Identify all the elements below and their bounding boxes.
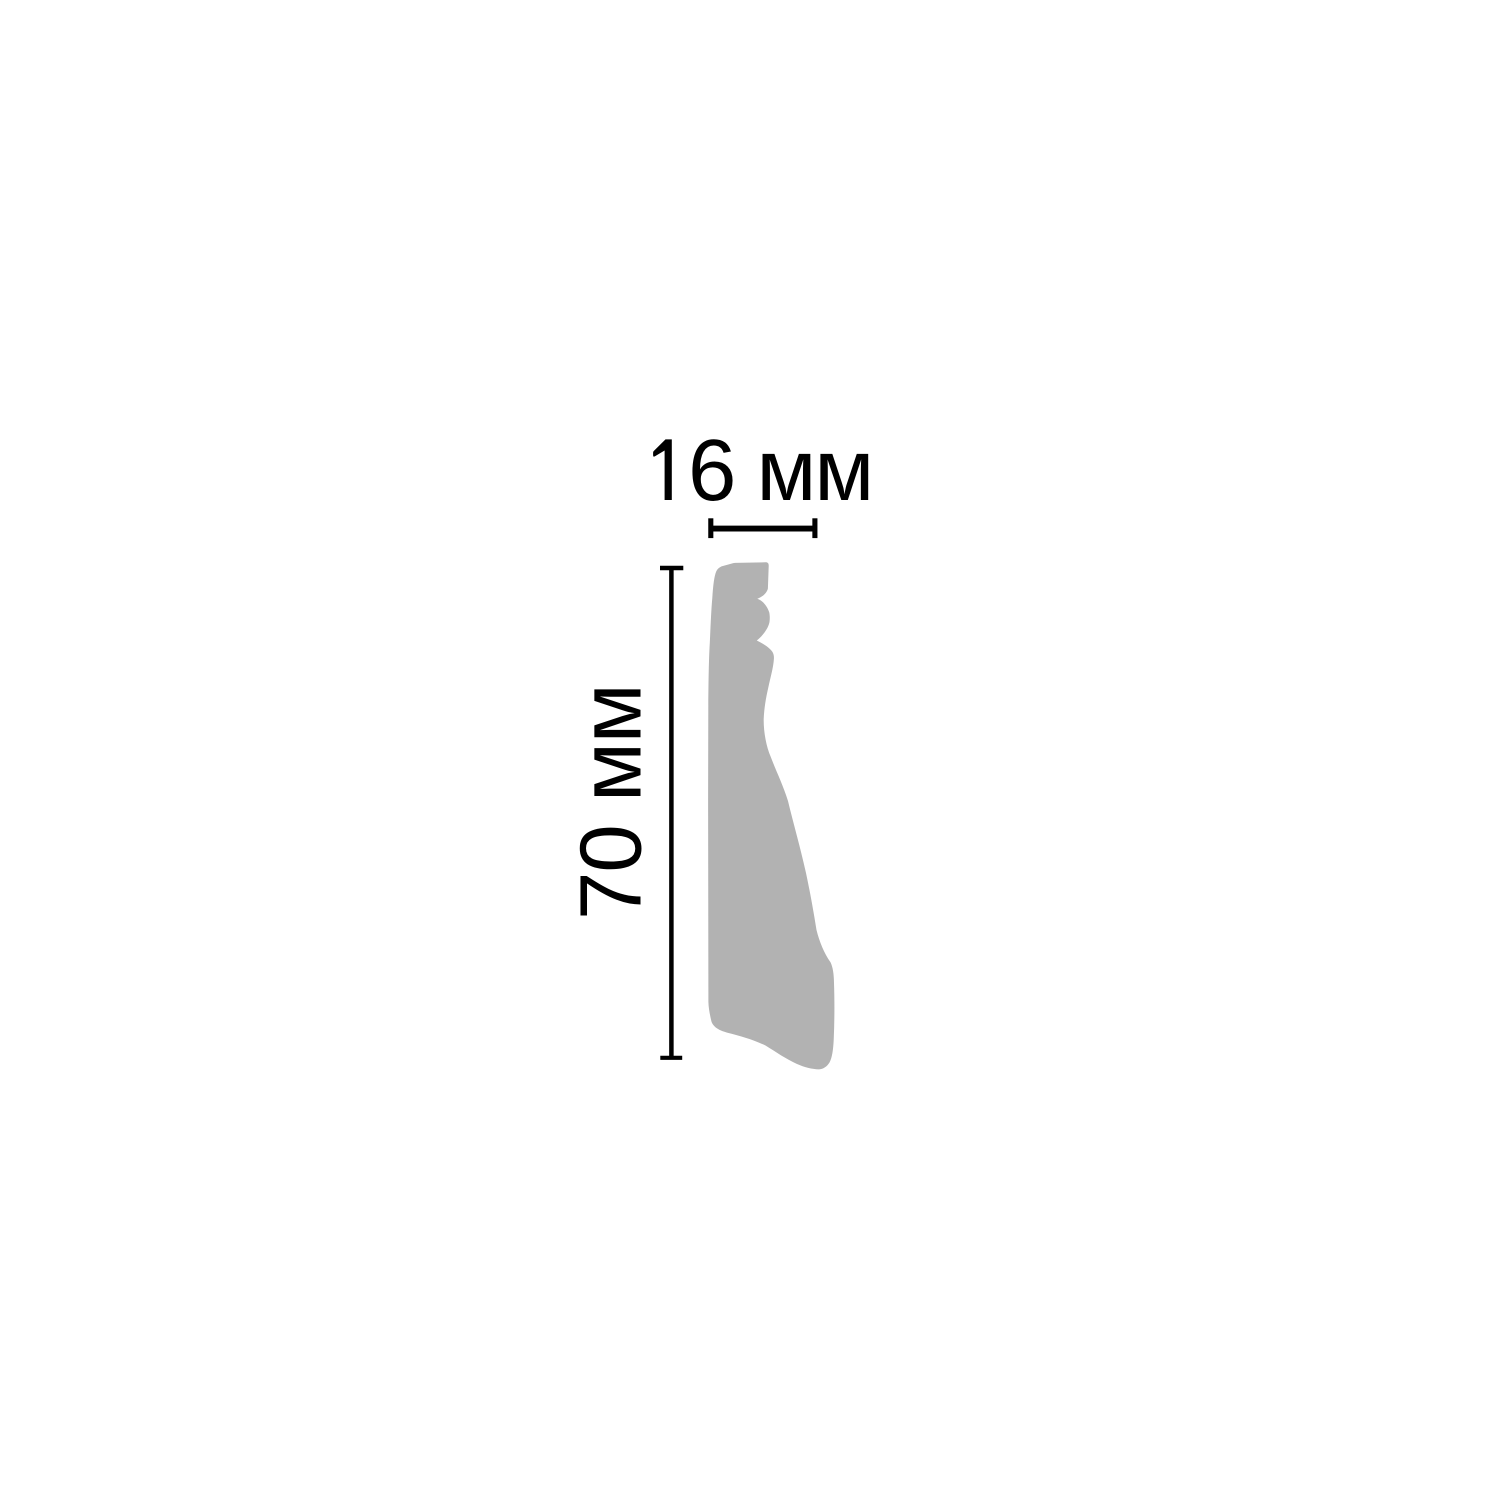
svg-text:6 мм: 6 мм (688, 422, 872, 519)
svg-text:70 мм: 70 мм (563, 684, 660, 920)
